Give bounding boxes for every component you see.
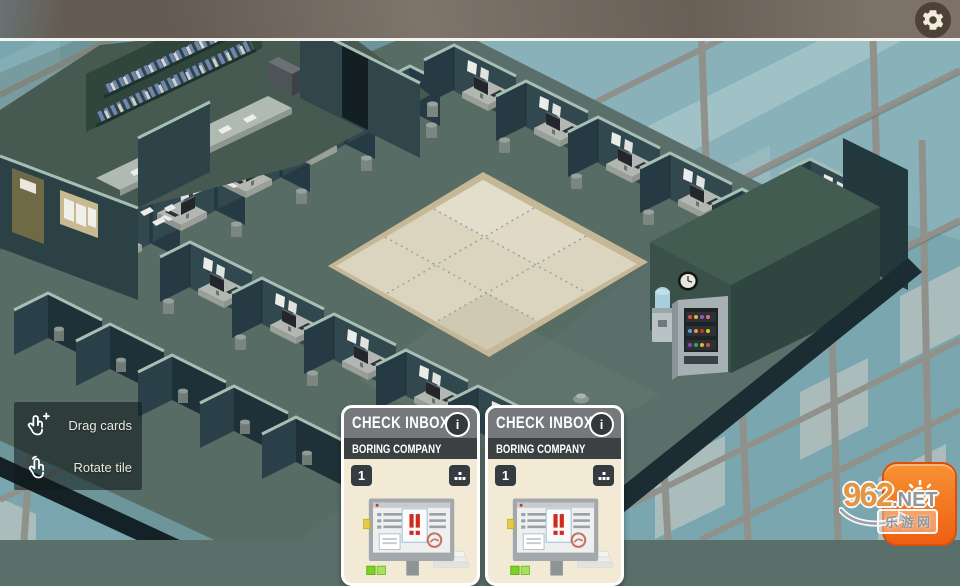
sun-icon <box>898 471 942 515</box>
wall-clock <box>678 272 698 291</box>
water-cooler <box>652 287 673 342</box>
stack-dots-icon <box>593 465 614 486</box>
tutorial-row-drag: Drag cards <box>14 405 142 445</box>
card-header: CHECK INBOX i <box>344 408 477 438</box>
card-check-inbox-1[interactable]: CHECK INBOX i BORING COMPANY 1 <box>341 405 480 586</box>
tutorial-panel: Drag cards Rotate tile <box>14 402 142 490</box>
vending-machine <box>672 296 728 380</box>
tutorial-row-rotate: Rotate tile <box>14 447 142 487</box>
card-company-bar: BORING COMPANY <box>344 438 477 459</box>
monitor-alert-illustration <box>492 491 617 583</box>
tap-gesture-icon <box>24 454 51 481</box>
tutorial-rotate-label: Rotate tile <box>73 460 132 475</box>
info-icon[interactable]: i <box>589 412 614 437</box>
card-body: 1 <box>488 459 621 583</box>
office-scene <box>0 0 960 540</box>
next-day-button[interactable] <box>882 462 957 546</box>
card-title: CHECK INBOX <box>496 413 593 433</box>
card-count-badge: 1 <box>495 465 516 486</box>
settings-button[interactable] <box>915 2 951 38</box>
gear-icon <box>920 7 946 33</box>
monitor-alert-illustration <box>348 491 473 583</box>
tutorial-drag-label: Drag cards <box>68 418 132 433</box>
card-count-badge: 1 <box>351 465 372 486</box>
game-screen: { "topbar": { "settings_icon": "gear-ico… <box>0 0 960 540</box>
room-door <box>12 168 44 244</box>
drag-gesture-icon <box>24 412 51 439</box>
card-header: CHECK INBOX i <box>488 408 621 438</box>
card-check-inbox-2[interactable]: CHECK INBOX i BORING COMPANY 1 <box>485 405 624 586</box>
top-bar <box>0 0 960 41</box>
card-title: CHECK INBOX <box>352 413 449 433</box>
info-icon[interactable]: i <box>445 412 470 437</box>
card-company: BORING COMPANY <box>496 442 585 456</box>
stack-dots-icon <box>449 465 470 486</box>
card-company: BORING COMPANY <box>352 442 441 456</box>
card-company-bar: BORING COMPANY <box>488 438 621 459</box>
card-body: 1 <box>344 459 477 583</box>
